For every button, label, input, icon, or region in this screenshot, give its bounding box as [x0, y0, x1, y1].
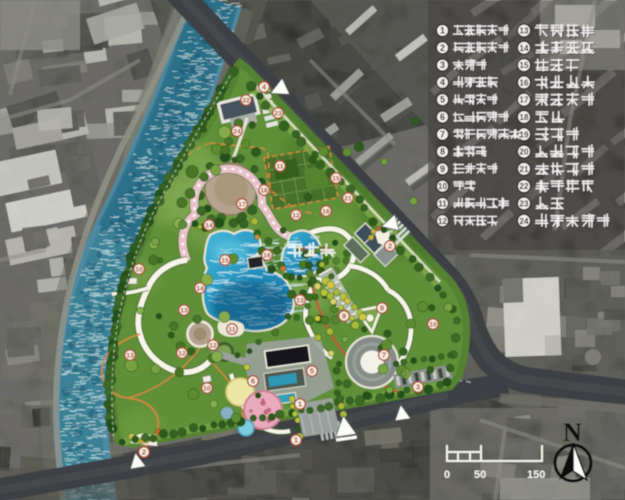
svg-text:7: 7 [382, 351, 386, 360]
svg-text:15: 15 [221, 258, 229, 265]
svg-text:10: 10 [438, 182, 447, 191]
svg-text:21: 21 [520, 165, 529, 174]
svg-text:6: 6 [440, 112, 445, 122]
svg-text:16: 16 [520, 78, 529, 87]
svg-text:10: 10 [135, 267, 143, 274]
svg-text:23: 23 [274, 111, 282, 118]
svg-text:0: 0 [444, 469, 450, 481]
svg-text:14: 14 [520, 44, 529, 53]
svg-text:13: 13 [180, 308, 188, 315]
svg-text:17: 17 [238, 202, 246, 209]
svg-text:3: 3 [416, 383, 420, 392]
svg-text:11: 11 [276, 164, 283, 171]
svg-text:9: 9 [440, 164, 445, 174]
svg-text:3: 3 [440, 60, 445, 70]
svg-text:13: 13 [520, 27, 529, 36]
svg-text:18: 18 [260, 188, 268, 195]
svg-text:150: 150 [527, 469, 545, 481]
svg-text:10: 10 [429, 322, 437, 329]
svg-text:16: 16 [322, 209, 330, 216]
svg-text:50: 50 [474, 469, 486, 481]
svg-text:13: 13 [296, 298, 304, 305]
svg-text:17: 17 [520, 96, 529, 105]
svg-text:8: 8 [440, 147, 445, 157]
svg-text:N: N [563, 418, 582, 447]
svg-text:23: 23 [520, 200, 529, 209]
svg-text:22: 22 [520, 182, 529, 191]
svg-text:2: 2 [388, 242, 392, 251]
svg-text:21: 21 [344, 196, 352, 203]
svg-text:2: 2 [142, 448, 146, 457]
svg-text:14: 14 [205, 223, 213, 230]
svg-text:14: 14 [196, 286, 204, 293]
svg-text:1: 1 [440, 26, 445, 36]
svg-text:15: 15 [332, 176, 340, 183]
svg-text:5: 5 [440, 95, 445, 105]
svg-text:10: 10 [203, 386, 211, 393]
svg-text:4: 4 [440, 77, 445, 87]
svg-text:2: 2 [440, 43, 445, 53]
svg-text:16: 16 [263, 253, 271, 260]
svg-text:15: 15 [520, 61, 529, 70]
svg-text:11: 11 [228, 327, 235, 334]
svg-text:18: 18 [520, 113, 529, 122]
svg-text:12: 12 [209, 343, 217, 350]
svg-text:20: 20 [520, 148, 529, 157]
svg-text:19: 19 [520, 130, 529, 139]
svg-text:12: 12 [178, 351, 186, 358]
svg-text:12: 12 [438, 217, 447, 226]
svg-text:11: 11 [438, 200, 447, 209]
svg-text:9: 9 [342, 312, 346, 321]
svg-text:7: 7 [440, 129, 445, 139]
svg-text:22: 22 [242, 98, 250, 105]
svg-text:24: 24 [520, 217, 529, 226]
svg-text:24: 24 [233, 129, 241, 136]
svg-text:12: 12 [292, 213, 300, 220]
svg-text:8: 8 [380, 304, 384, 313]
svg-text:6: 6 [251, 377, 255, 386]
svg-text:13: 13 [126, 353, 134, 360]
